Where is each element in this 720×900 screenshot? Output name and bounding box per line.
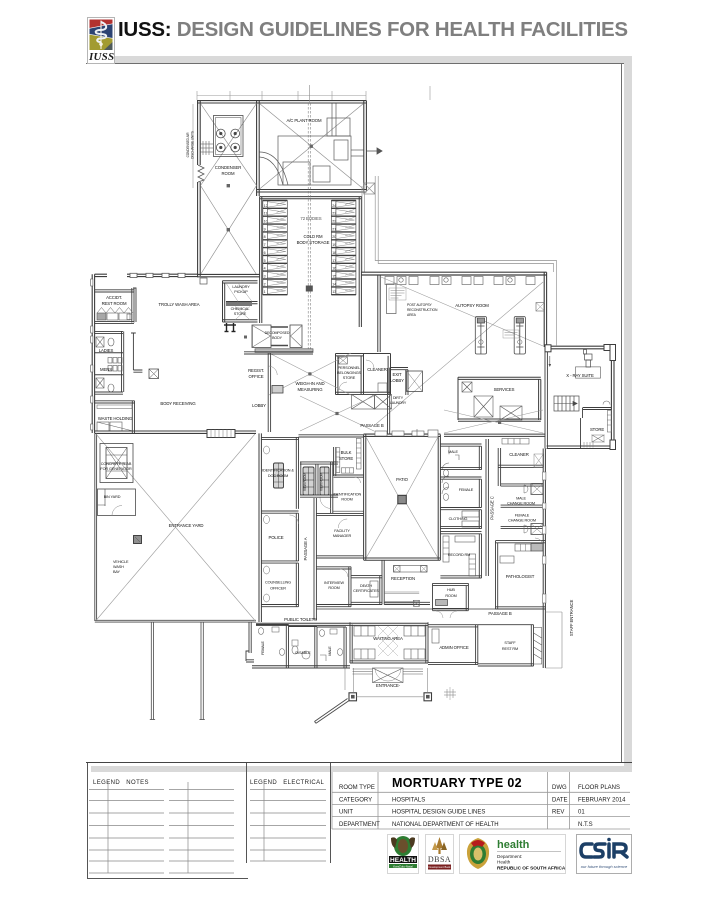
- svg-text:VIEW ROOM: VIEW ROOM: [303, 473, 307, 491]
- svg-text:STORE: STORE: [234, 312, 247, 316]
- svg-text:RECEPTION: RECEPTION: [391, 576, 415, 581]
- svg-text:ROOM: ROOM: [341, 498, 352, 502]
- svg-text:5: 5: [264, 259, 266, 263]
- svg-text:AUTOPSY ROOM: AUTOPSY ROOM: [455, 303, 489, 308]
- svg-text:UNIT: UNIT: [339, 810, 353, 816]
- svg-text:STORE: STORE: [590, 427, 604, 432]
- svg-text:PASSAGE A: PASSAGE A: [303, 537, 308, 560]
- svg-text:WASTE HOLDING: WASTE HOLDING: [98, 416, 133, 421]
- svg-text:X - RAY SUITE: X - RAY SUITE: [566, 373, 594, 378]
- svg-text:PICKUP: PICKUP: [234, 290, 248, 294]
- svg-text:FEMALE: FEMALE: [515, 514, 530, 518]
- svg-text:VEHICLE: VEHICLE: [113, 560, 129, 564]
- svg-text:A/C PLANT ROOM: A/C PLANT ROOM: [286, 118, 322, 123]
- svg-text:CHEMICAL: CHEMICAL: [231, 307, 250, 311]
- svg-text:PUBLIC TOILETS: PUBLIC TOILETS: [284, 617, 317, 622]
- svg-text:PASSAGE B: PASSAGE B: [488, 611, 511, 616]
- svg-text:KwaZulu-Natal: KwaZulu-Natal: [393, 864, 413, 868]
- svg-text:2: 2: [264, 282, 266, 286]
- svg-text:BODY: BODY: [272, 336, 282, 340]
- svg-text:REGIST.: REGIST.: [248, 368, 264, 373]
- svg-text:LADIES: LADIES: [99, 348, 114, 353]
- svg-text:COLD RM: COLD RM: [304, 234, 324, 239]
- svg-text:72 BODIES: 72 BODIES: [300, 216, 321, 221]
- svg-text:Health: Health: [497, 860, 511, 865]
- svg-text:POLICE: POLICE: [268, 535, 283, 540]
- svg-text:MENS: MENS: [100, 367, 112, 372]
- svg-text:BULK: BULK: [341, 450, 352, 455]
- svg-text:ROOM: ROOM: [445, 594, 456, 598]
- svg-text:4: 4: [264, 267, 266, 271]
- svg-text:health: health: [497, 839, 530, 851]
- svg-text:BELONGINGS: BELONGINGS: [337, 371, 361, 375]
- svg-text:DIRTY: DIRTY: [393, 396, 404, 400]
- svg-text:DEPARTMENT: DEPARTMENT: [339, 822, 380, 828]
- svg-text:PATIO: PATIO: [396, 477, 408, 482]
- svg-text:HOSPITALS: HOSPITALS: [392, 798, 425, 804]
- svg-text:FLOOR PLANS: FLOOR PLANS: [578, 785, 620, 791]
- svg-text:Department:: Department:: [497, 854, 522, 859]
- svg-text:CATEGORY: CATEGORY: [339, 798, 372, 804]
- svg-text:REST RM: REST RM: [502, 647, 518, 651]
- svg-text:PASSAGE B: PASSAGE B: [360, 423, 383, 428]
- svg-text:SERVICES: SERVICES: [494, 387, 515, 392]
- svg-text:LAUNDRY: LAUNDRY: [232, 285, 250, 289]
- svg-text:LAUNDRY: LAUNDRY: [390, 401, 407, 405]
- svg-text:IUSS: IUSS: [88, 51, 114, 63]
- svg-text:CHANGE ROOM: CHANGE ROOM: [507, 501, 535, 505]
- svg-text:BODY STORAGE: BODY STORAGE: [297, 240, 330, 245]
- svg-text:WASH: WASH: [113, 565, 124, 569]
- svg-text:REPUBLIC OF SOUTH AFRICA: REPUBLIC OF SOUTH AFRICA: [497, 866, 566, 871]
- svg-text:PERSONNEL: PERSONNEL: [338, 366, 360, 370]
- svg-text:RECONSTRUCTION: RECONSTRUCTION: [407, 308, 438, 312]
- svg-text:DOC ROOM: DOC ROOM: [268, 474, 288, 478]
- svg-text:9: 9: [264, 227, 266, 231]
- svg-text:N.T.S: N.T.S: [578, 822, 593, 828]
- svg-text:WEIGH-IN AND: WEIGH-IN AND: [296, 381, 325, 386]
- svg-text:MANAGER: MANAGER: [333, 534, 352, 538]
- svg-text:ROOM: ROOM: [328, 586, 339, 590]
- svg-text:WAITING AREA: WAITING AREA: [373, 636, 403, 641]
- svg-text:BIN YARD: BIN YARD: [104, 495, 121, 499]
- svg-text:LOBBY: LOBBY: [252, 403, 266, 408]
- svg-text:our future through science: our future through science: [581, 864, 628, 869]
- svg-text:CONCRETE SLAB: CONCRETE SLAB: [101, 462, 132, 466]
- svg-text:REST ROOM: REST ROOM: [102, 301, 127, 306]
- svg-text:OFFICE: OFFICE: [248, 374, 263, 379]
- svg-text:PATHOLOGIST: PATHOLOGIST: [506, 574, 535, 579]
- svg-text:ROOM: ROOM: [222, 171, 235, 176]
- svg-text:MALE: MALE: [328, 646, 332, 656]
- svg-text:11: 11: [264, 212, 268, 216]
- svg-text:STAFF ENTRANCE: STAFF ENTRANCE: [569, 600, 574, 637]
- svg-text:Development Bank: Development Bank: [429, 865, 452, 869]
- svg-text:DISABLE: DISABLE: [295, 651, 311, 655]
- svg-text:FOR GENERATOR: FOR GENERATOR: [100, 467, 132, 471]
- svg-text:CLEANER: CLEANER: [367, 367, 386, 372]
- svg-text:BAY: BAY: [113, 570, 121, 574]
- svg-text:AREA: AREA: [407, 313, 417, 317]
- svg-text:BODY RECEIVING: BODY RECEIVING: [160, 401, 196, 406]
- svg-text:CONDENSED AIR: CONDENSED AIR: [186, 132, 190, 158]
- svg-text:7: 7: [264, 243, 266, 247]
- svg-text:STAFF: STAFF: [504, 641, 516, 645]
- svg-text:OFFICER: OFFICER: [270, 587, 286, 591]
- svg-text:FEMALE: FEMALE: [261, 640, 265, 654]
- svg-text:ROOM TYPE: ROOM TYPE: [339, 785, 375, 791]
- svg-text:DBSA: DBSA: [428, 855, 451, 864]
- svg-text:ENTRANCE-: ENTRANCE-: [376, 683, 401, 688]
- svg-text:ADMIN OFFICE: ADMIN OFFICE: [439, 645, 469, 650]
- svg-text:POST AUTOPSY: POST AUTOPSY: [407, 303, 432, 307]
- svg-text:CHANGE ROOM: CHANGE ROOM: [508, 519, 536, 523]
- svg-text:COUNSELLING: COUNSELLING: [265, 581, 291, 585]
- svg-text:LOBBY: LOBBY: [390, 378, 404, 383]
- svg-text:MEASURING: MEASURING: [298, 387, 324, 392]
- svg-text:TROLLY WASH AREA: TROLLY WASH AREA: [159, 302, 200, 307]
- svg-text:DATE: DATE: [552, 798, 568, 804]
- svg-text:CLEANER: CLEANER: [509, 452, 528, 457]
- svg-text:3: 3: [264, 274, 266, 278]
- svg-text:HOSPITAL DESIGN GUIDE LINES: HOSPITAL DESIGN GUIDE LINES: [392, 810, 485, 816]
- svg-text:6: 6: [264, 251, 266, 255]
- svg-text:MALE: MALE: [516, 497, 526, 501]
- svg-text:INTERVIEW: INTERVIEW: [324, 581, 344, 585]
- svg-text:DISCHARGE UNITS: DISCHARGE UNITS: [191, 131, 195, 159]
- svg-text:EXIT: EXIT: [392, 372, 402, 377]
- svg-text:CONDENSER: CONDENSER: [215, 165, 241, 170]
- svg-text:VIEW ROOM: VIEW ROOM: [319, 473, 323, 491]
- svg-text:ENTRANCE YARD: ENTRANCE YARD: [169, 523, 204, 528]
- svg-text:REV: REV: [552, 810, 564, 816]
- svg-text:CLOTHING: CLOTHING: [449, 517, 468, 521]
- svg-text:MORTUARY TYPE 02: MORTUARY TYPE 02: [392, 776, 522, 790]
- svg-text:IDENTIFICATION: IDENTIFICATION: [333, 493, 362, 497]
- svg-text:ACCIDT.: ACCIDT.: [106, 295, 122, 300]
- svg-text:MALE: MALE: [448, 450, 458, 454]
- svg-text:DWG: DWG: [552, 785, 567, 791]
- svg-text:1: 1: [264, 290, 266, 294]
- svg-text:STORE: STORE: [343, 376, 356, 380]
- svg-text:RECORD RM: RECORD RM: [448, 553, 470, 557]
- svg-text:DEATH: DEATH: [360, 584, 372, 588]
- svg-text:CERTIFICATES: CERTIFICATES: [353, 589, 379, 593]
- svg-text:NATIONAL DEPARTMENT OF HEALTH: NATIONAL DEPARTMENT OF HEALTH: [392, 822, 499, 828]
- svg-text:PASSAGE C: PASSAGE C: [490, 496, 495, 519]
- svg-text:STORE: STORE: [339, 456, 353, 461]
- svg-text:DECOMPOSED: DECOMPOSED: [265, 331, 290, 335]
- svg-text:FACILITY: FACILITY: [334, 529, 350, 533]
- svg-text:FEBRUARY 2014: FEBRUARY 2014: [578, 798, 626, 804]
- svg-text:HEALTH: HEALTH: [390, 857, 416, 864]
- svg-text:HUB: HUB: [447, 588, 455, 592]
- svg-text:IDENTIFICATION &: IDENTIFICATION &: [262, 469, 294, 473]
- svg-text:8: 8: [264, 235, 266, 239]
- svg-text:01: 01: [578, 810, 585, 816]
- svg-text:FEMALE: FEMALE: [459, 488, 474, 492]
